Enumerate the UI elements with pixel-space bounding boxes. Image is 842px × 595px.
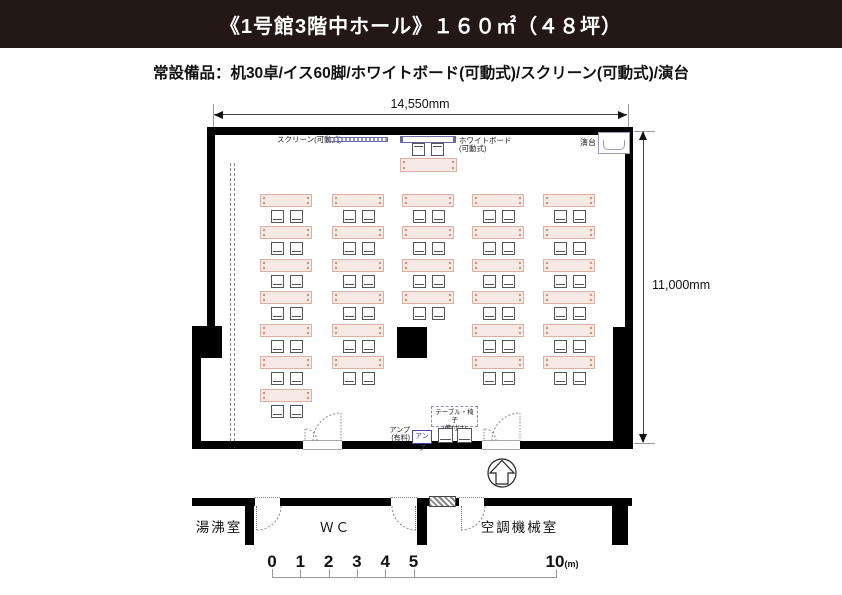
wall-left-upper [207,127,215,326]
chair [502,242,515,255]
wall-right-upper [625,127,633,327]
chair [271,372,284,385]
chair [432,307,445,320]
chair [502,210,515,223]
desk [543,194,595,207]
chair [413,242,426,255]
desk [543,291,595,304]
chair [483,210,496,223]
chair [362,340,375,353]
chair [554,242,567,255]
desk [332,291,384,304]
desk [543,356,595,369]
scale-tick [556,569,557,578]
chair [343,210,356,223]
chair [554,210,567,223]
chair [290,372,303,385]
chair [573,307,586,320]
desk [260,259,312,272]
chair [362,242,375,255]
desk [543,226,595,239]
chair [362,275,375,288]
arrow-left-icon [214,111,223,119]
chair [290,340,303,353]
desk [260,226,312,239]
fixed-table-note: テーブル・椅子 (備付け) [431,406,478,427]
scale-bar: 01234510(m) [0,552,842,592]
scale-tick [272,569,273,578]
door-swing-right-icon [482,411,522,442]
desk [260,389,312,402]
desk [402,291,454,304]
desk [402,194,454,207]
arrow-right-icon [618,111,627,119]
desk [332,356,384,369]
chair [413,307,426,320]
wall-left-protrusion [192,326,222,358]
chair [502,372,515,385]
dim-height-line [643,132,644,442]
page-title: 《1号館3階中ホール》１６０㎡（４８坪） [220,10,622,39]
chair [573,242,586,255]
desk [543,259,595,272]
screen-line [328,137,388,142]
desk [472,324,524,337]
desk [402,259,454,272]
desk [260,356,312,369]
desk [260,194,312,207]
desk [472,356,524,369]
chair [431,143,444,156]
chair [271,307,284,320]
room-label-yuwakashi: 湯沸室 [191,516,247,536]
desk [332,194,384,207]
desk [332,226,384,239]
dimension-width-label: 14,550mm [340,97,500,111]
amp-box: アンプ [412,430,432,444]
amp-label-2: (有料) [372,435,410,443]
partition-track [230,163,235,441]
chair [573,210,586,223]
fixed-chair [457,428,472,443]
chair [573,372,586,385]
arrow-up-icon [639,131,647,140]
header-bar: 《1号館3階中ホール》１６０㎡（４８坪） [0,0,842,48]
chair [362,372,375,385]
chair [290,210,303,223]
scale-tick [357,569,358,578]
chair [271,340,284,353]
wall-right-lower [613,327,633,449]
chair [271,210,284,223]
scale-tick [385,569,386,578]
chair [413,210,426,223]
fixed-chair [438,428,453,443]
amp-label-1: アンプ [372,427,410,435]
desk [472,226,524,239]
whiteboard-line [400,136,456,143]
chair [343,242,356,255]
equipment-note: 常設備品：机30卓/イス60脚/ホワイトボード(可動式)/スクリーン(可動式)/… [0,61,842,83]
chair [343,307,356,320]
chair [573,340,586,353]
scale-unit-label: (m) [564,559,578,569]
annex-wall-right [612,498,628,545]
front-desk [400,158,457,172]
dim-ext-bottom [634,443,655,444]
chair [554,275,567,288]
desk [332,259,384,272]
chair [502,340,515,353]
chair [362,210,375,223]
desk [472,194,524,207]
chair [554,340,567,353]
desk [402,226,454,239]
dim-width-line [214,114,627,115]
chair [290,242,303,255]
chair [343,340,356,353]
chair [290,307,303,320]
podium-box [598,132,630,154]
chair [502,307,515,320]
dim-ext-right [628,104,629,127]
arrow-down-icon [639,434,647,443]
chair [271,242,284,255]
scale-tick [329,569,330,578]
chair [343,275,356,288]
chair [432,242,445,255]
chair [432,210,445,223]
chair [413,275,426,288]
desk [332,324,384,337]
pillar [397,327,427,358]
chair [554,307,567,320]
chair [343,372,356,385]
chair [271,275,284,288]
chair [483,275,496,288]
chair [483,307,496,320]
desk [543,324,595,337]
scale-tick-label: 10(m) [542,552,582,572]
chair [573,275,586,288]
door-swing-left-icon [303,411,343,442]
floor-plan-page: 《1号館3階中ホール》１６０㎡（４８坪） 常設備品：机30卓/イス60脚/ホワイ… [0,0,842,595]
chair [483,372,496,385]
wall-left-lower [192,358,201,449]
desk [260,291,312,304]
chair [432,275,445,288]
chair [271,405,284,418]
fixed-note-line1: テーブル・椅子 [432,409,477,425]
desk [260,324,312,337]
chair [412,143,425,156]
chair [502,275,515,288]
chair [483,242,496,255]
annex-wall-divider-2 [417,498,427,545]
desk [472,259,524,272]
entrance-arrow-icon [486,457,518,489]
podium-label: 演台 [580,139,596,147]
chair [554,372,567,385]
chair [362,307,375,320]
dimension-height-label: 11,000mm [652,278,710,292]
chair [290,405,303,418]
chair [483,340,496,353]
wall-top [207,127,633,135]
scale-tick [300,569,301,578]
desk [472,291,524,304]
whiteboard-label-2: (可動式) [459,145,512,153]
scale-tick [414,569,415,578]
hatch-block [429,496,456,507]
room-label-wc: ＷＣ [254,516,417,536]
chair [290,275,303,288]
podium-top-shape [603,140,625,150]
room-label-kuchou: 空調機械室 [427,516,612,536]
